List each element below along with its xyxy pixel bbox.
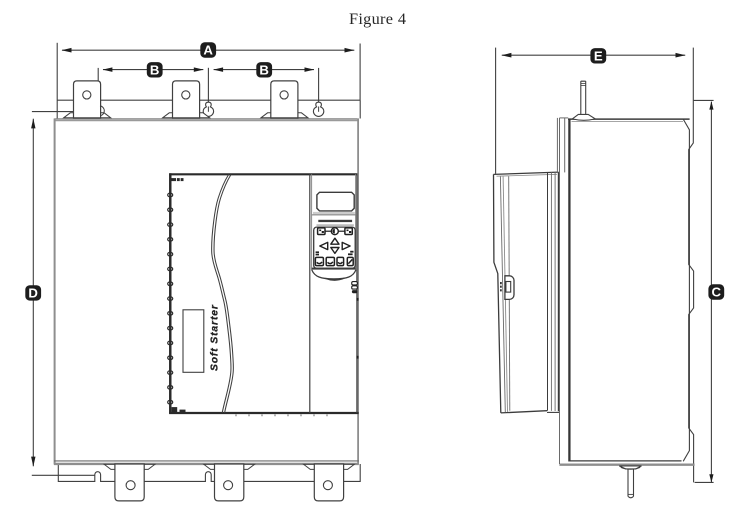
svg-text:D: D xyxy=(28,286,38,301)
svg-text:E: E xyxy=(594,48,603,63)
svg-text:B: B xyxy=(259,62,269,77)
svg-text:A: A xyxy=(203,43,213,58)
svg-text:Figure4: Figure4 xyxy=(349,9,406,28)
svg-text:B: B xyxy=(150,62,160,77)
svg-text:C: C xyxy=(712,285,722,300)
svg-text:Soft Starter: Soft Starter xyxy=(209,304,220,371)
